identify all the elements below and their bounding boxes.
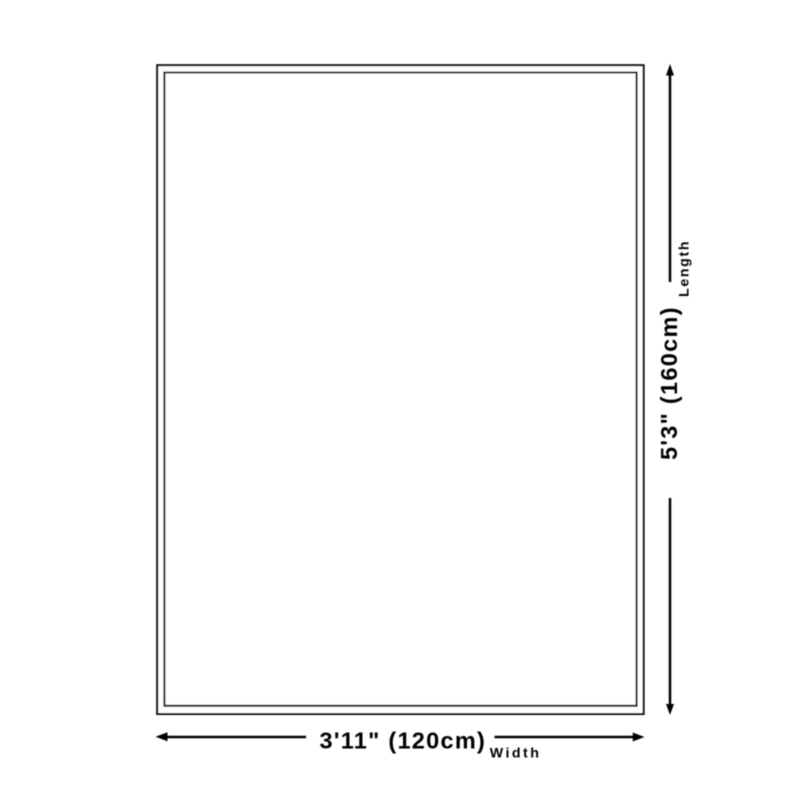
svg-text:3'11" (120cm): 3'11" (120cm) — [320, 727, 487, 753]
svg-text:5'3" (160cm): 5'3" (160cm) — [656, 306, 682, 460]
svg-text:Length: Length — [677, 240, 693, 297]
svg-text:Width: Width — [490, 746, 542, 762]
